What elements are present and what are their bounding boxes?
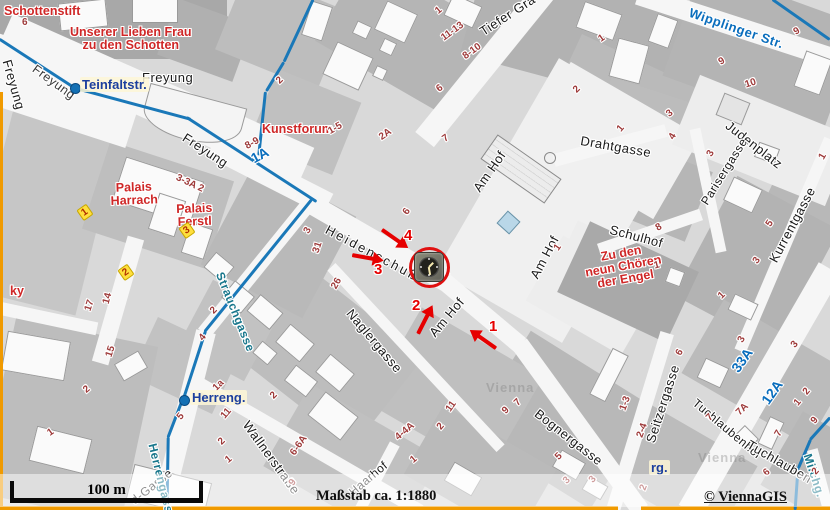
arrow-number: 4	[404, 227, 412, 244]
clock-face	[419, 257, 439, 277]
copyright-link[interactable]: © ViennaGIS	[704, 489, 787, 506]
poi-label: PalaisHarrach	[110, 180, 158, 208]
tile-watermark: Vienna	[486, 380, 534, 395]
station-label: rg.	[649, 460, 670, 475]
station-label: Herreng.	[190, 390, 247, 405]
poi-label-line: zu den Schotten	[70, 39, 192, 52]
poi-label-line: Harrach	[110, 193, 158, 208]
arrow-number: 2	[412, 297, 420, 314]
house-number: 1	[223, 453, 234, 465]
arrow-number: 3	[374, 261, 382, 278]
house-number: 6	[22, 17, 28, 28]
house-number: 17	[83, 299, 97, 313]
poi-label: ky	[10, 285, 24, 298]
boundary-line	[641, 506, 830, 510]
station-label: Teinfaltstr.	[80, 77, 149, 92]
poi-label: Schottenstift	[4, 5, 80, 18]
clock-body	[414, 252, 444, 282]
building	[132, 0, 178, 23]
station-dot	[179, 395, 190, 406]
poi-label: Kunstforum	[262, 123, 333, 136]
map-canvas[interactable]: ViennaViennaFreyungFreyungFreyungFreyung…	[0, 0, 830, 510]
street-label: Freyung	[142, 70, 193, 85]
clock-icon	[409, 247, 450, 288]
poi-label-line: Schottenstift	[4, 5, 80, 18]
poi-label: Unserer Lieben Frauzu den Schotten	[70, 26, 192, 52]
poi-label-line: ky	[10, 285, 24, 298]
house-number: 2	[268, 390, 280, 402]
house-number: 7	[440, 132, 451, 144]
boundary-line	[0, 92, 3, 510]
house-number: 6	[674, 347, 686, 357]
boundary-line	[0, 506, 618, 510]
arrow-number: 1	[489, 318, 497, 335]
tile-watermark: Vienna	[698, 450, 746, 465]
house-number: 6	[401, 206, 413, 217]
poi-label-line: Kunstforum	[262, 123, 333, 136]
fountain-circle	[544, 152, 556, 164]
house-number: 2	[216, 436, 228, 448]
house-number: 2A	[377, 126, 394, 142]
